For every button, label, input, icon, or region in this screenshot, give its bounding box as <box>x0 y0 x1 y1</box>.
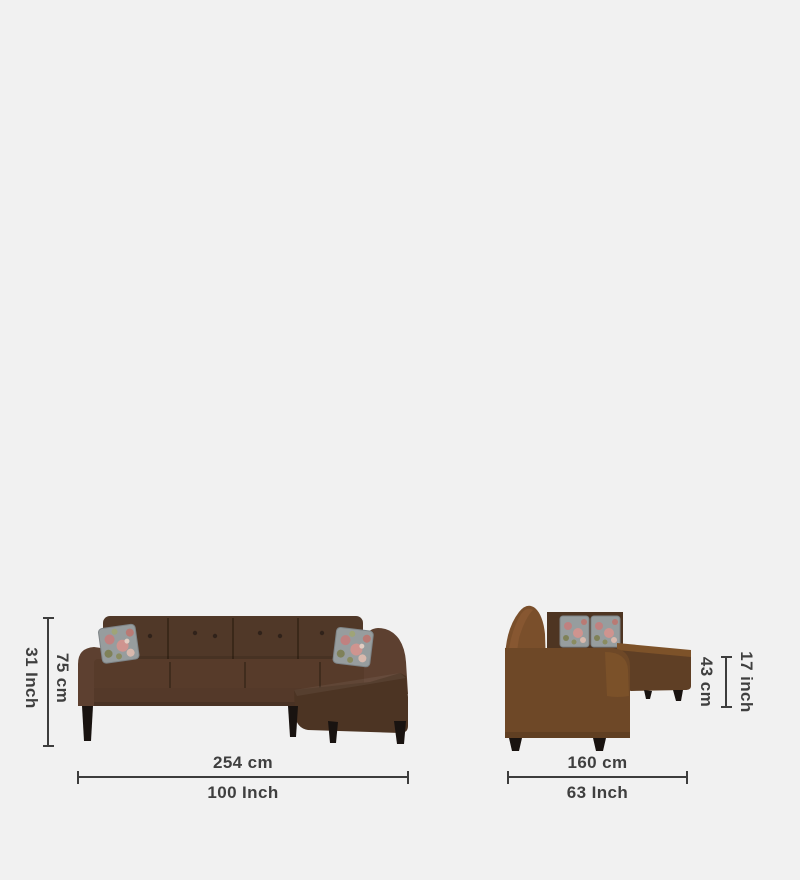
side-width-inch-label: 63 Inch <box>507 783 688 803</box>
front-height-inch-label: 31 Inch <box>21 647 41 708</box>
front-height-dimension-line <box>47 617 49 747</box>
product-dimension-diagram: 75 cm 31 Inch 254 cm 100 Inch 43 cm 17 i… <box>0 0 800 880</box>
side-pillow-left <box>560 616 589 647</box>
side-chaise-legs <box>644 690 683 701</box>
side-width-cm-label: 160 cm <box>507 753 688 773</box>
side-height-cm-label: 43 cm <box>696 657 716 707</box>
side-body-legs <box>509 738 606 751</box>
side-height-dimension-line <box>725 656 727 708</box>
front-right-pillow <box>333 627 374 667</box>
front-width-inch-label: 100 Inch <box>77 783 409 803</box>
front-height-cm-label: 75 cm <box>52 653 72 703</box>
side-height-inch-label: 17 inch <box>736 651 756 712</box>
side-width-dimension-line <box>507 776 688 778</box>
front-left-pillow <box>98 624 140 664</box>
sofa-front-view-illustration <box>70 602 415 752</box>
sofa-side-view-illustration <box>493 600 703 755</box>
front-width-cm-label: 254 cm <box>77 753 409 773</box>
side-pillow-right <box>591 616 620 647</box>
front-width-dimension-line <box>77 776 409 778</box>
